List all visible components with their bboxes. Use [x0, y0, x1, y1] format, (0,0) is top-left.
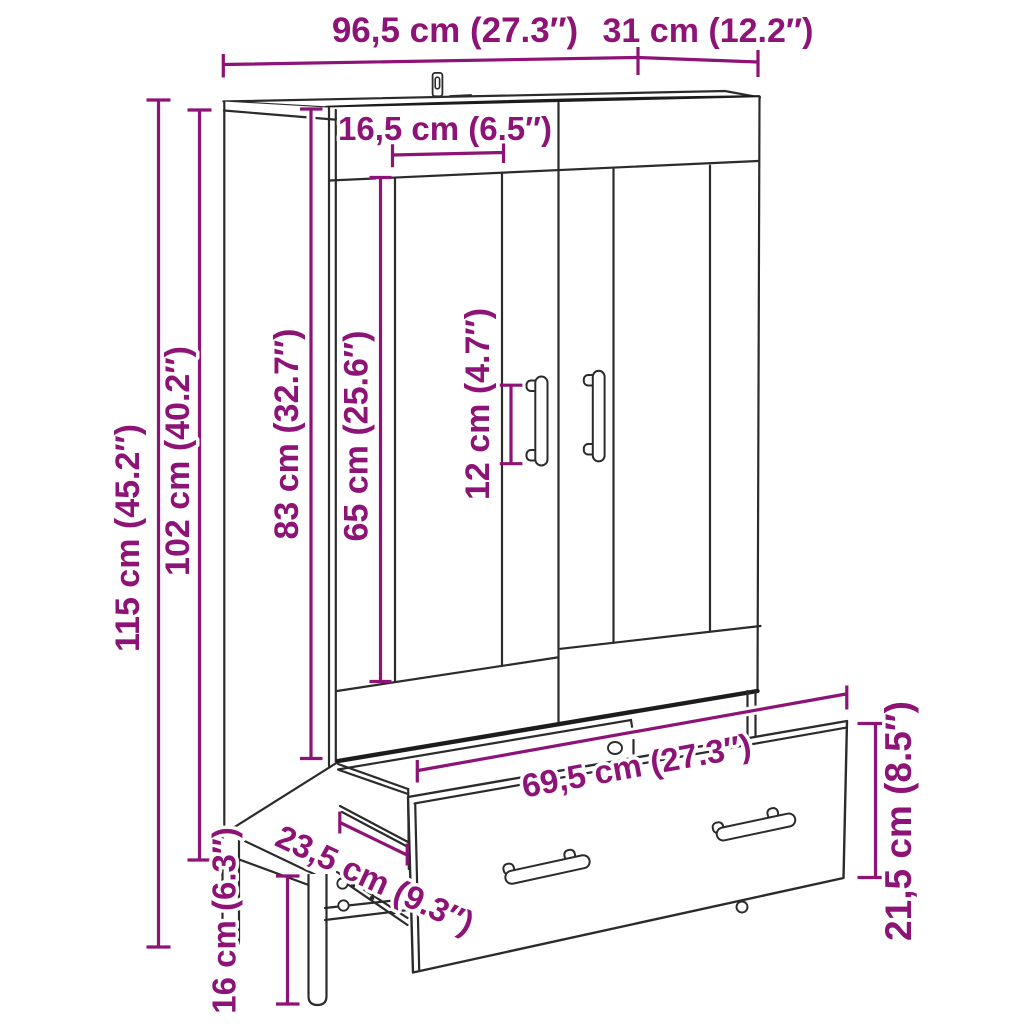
svg-text:16,5 cm (6.5″): 16,5 cm (6.5″): [338, 110, 552, 147]
svg-text:21,5 cm (8.5″): 21,5 cm (8.5″): [878, 701, 919, 941]
svg-text:96,5 cm (27.3″): 96,5 cm (27.3″): [332, 11, 578, 50]
svg-text:12 cm (4.7″): 12 cm (4.7″): [459, 308, 497, 500]
svg-text:31 cm (12.2″): 31 cm (12.2″): [603, 12, 814, 50]
svg-text:102 cm (40.2″): 102 cm (40.2″): [159, 346, 197, 576]
svg-text:115 cm (45.2″): 115 cm (45.2″): [109, 424, 147, 652]
svg-text:83 cm (32.7″): 83 cm (32.7″): [268, 329, 306, 540]
svg-text:16 cm (6.3″): 16 cm (6.3″): [206, 827, 243, 1013]
svg-text:65 cm (25.6″): 65 cm (25.6″): [338, 331, 376, 542]
